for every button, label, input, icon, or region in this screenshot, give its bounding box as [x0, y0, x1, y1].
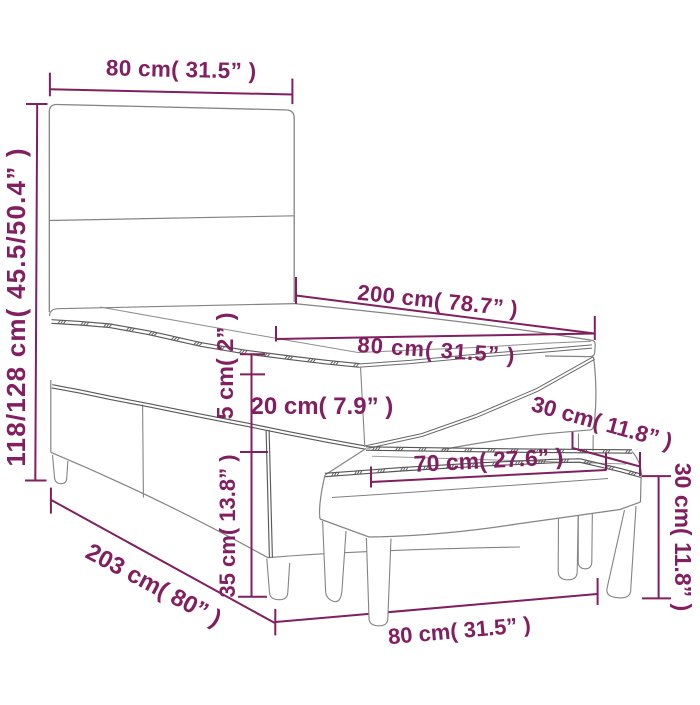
svg-text:118/128 cm( 45.5/50.4” ): 118/128 cm( 45.5/50.4” ): [1, 147, 31, 466]
svg-text:80 cm( 31.5” ): 80 cm( 31.5” ): [106, 55, 257, 83]
svg-text:30 cm( 11.8” ): 30 cm( 11.8” ): [670, 463, 696, 611]
svg-text:35 cm( 13.8” ): 35 cm( 13.8” ): [215, 454, 240, 597]
svg-text:5 cm( 2” ): 5 cm( 2” ): [212, 312, 238, 419]
svg-text:20 cm( 7.9” ): 20 cm( 7.9” ): [251, 393, 394, 420]
